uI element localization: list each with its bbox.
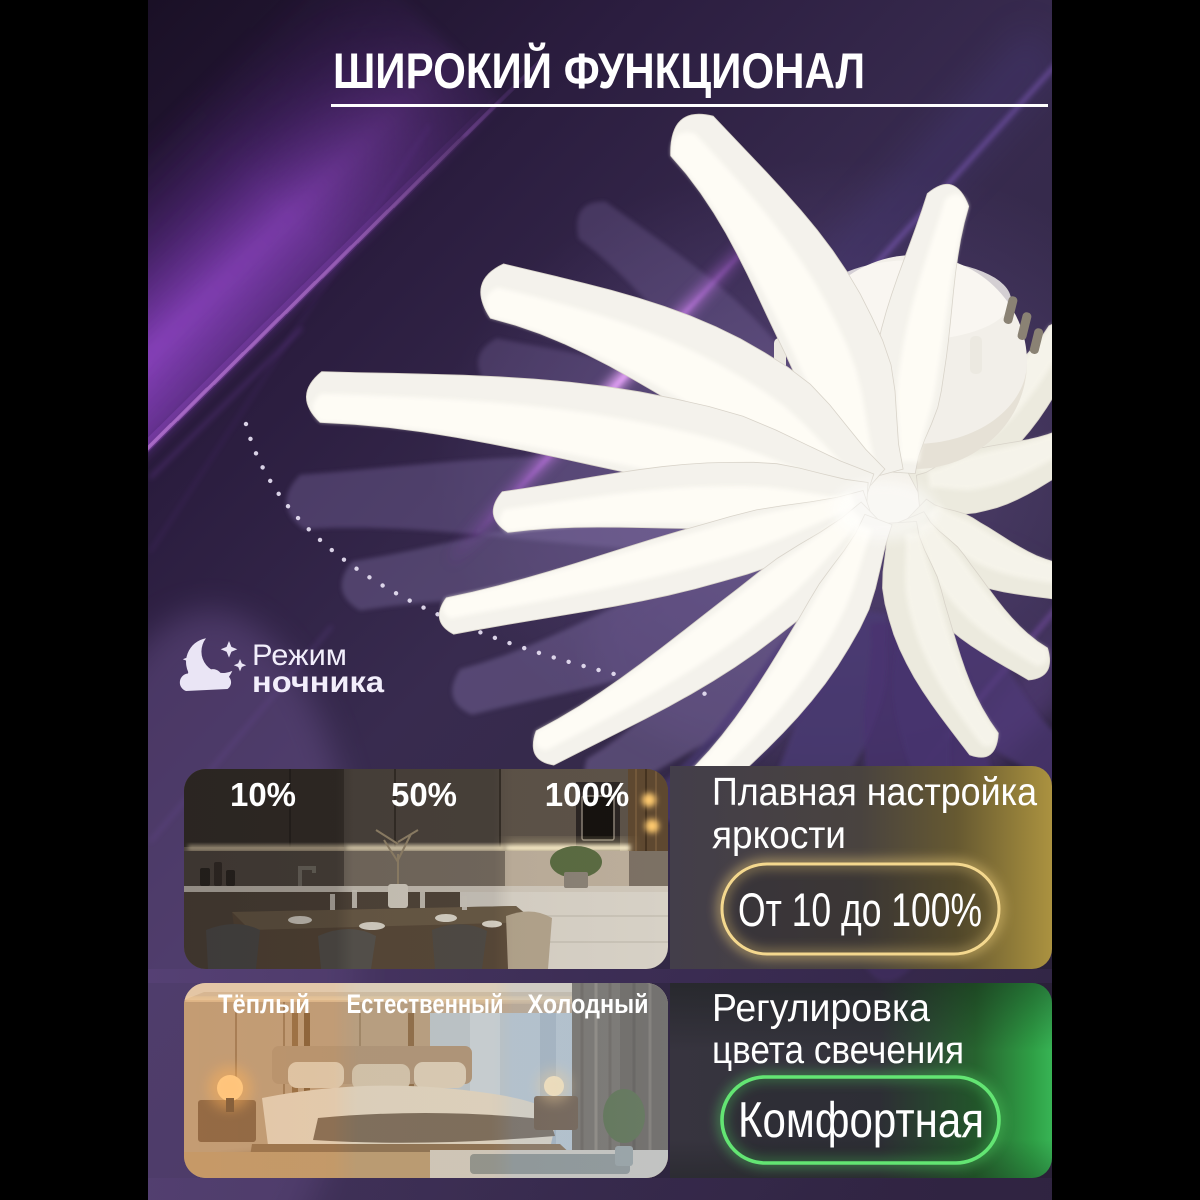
svg-text:Тёплый: Тёплый [218, 989, 310, 1019]
svg-text:цвета свечения: цвета свечения [712, 1029, 964, 1072]
svg-text:Плавная настройка: Плавная настройка [712, 771, 1037, 814]
svg-text:50%: 50% [391, 776, 457, 813]
svg-text:От 10 до 100%: От 10 до 100% [738, 883, 982, 936]
svg-text:ночника: ночника [252, 666, 384, 699]
svg-text:10%: 10% [230, 776, 296, 813]
svg-text:100%: 100% [545, 776, 629, 813]
svg-text:Естественный: Естественный [347, 989, 504, 1019]
svg-text:Холодный: Холодный [528, 989, 649, 1019]
svg-text:ШИРОКИЙ ФУНКЦИОНАЛ: ШИРОКИЙ ФУНКЦИОНАЛ [333, 42, 865, 99]
svg-text:яркости: яркости [712, 814, 846, 857]
svg-text:Комфортная: Комфортная [738, 1092, 984, 1148]
svg-text:Регулировка: Регулировка [712, 987, 930, 1030]
